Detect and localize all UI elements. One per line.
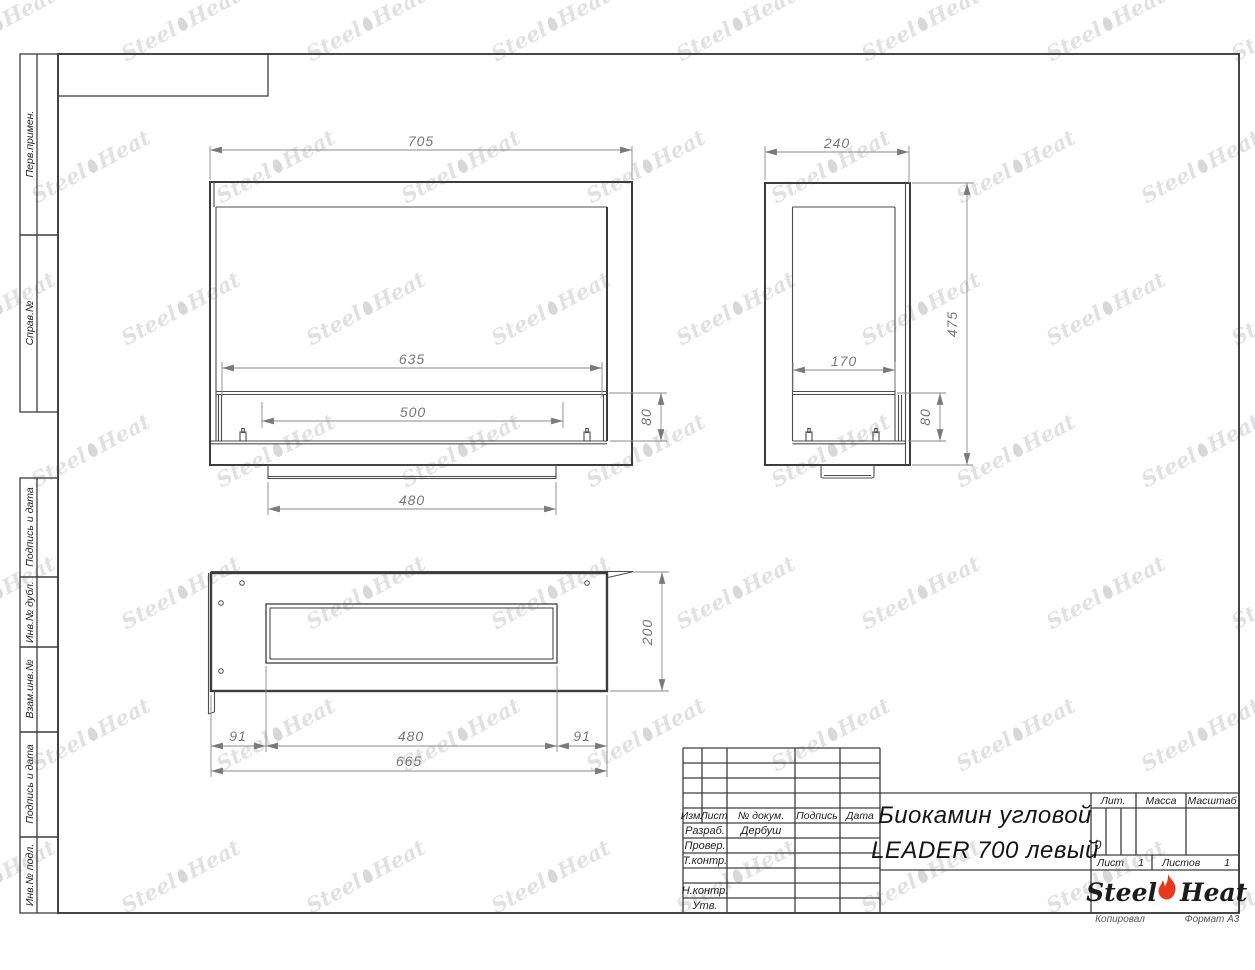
sheet-label: Лист	[1096, 857, 1124, 869]
margin-label: Перв.примен.	[24, 111, 36, 178]
lit-label: Лит.	[1100, 795, 1126, 807]
row-nkontr: Н.контр.	[682, 885, 729, 897]
flame-icon	[1159, 874, 1176, 900]
mounting-hole	[585, 581, 590, 586]
title-block: Изм. Лист № докум. Подпись Дата Разраб. …	[681, 748, 1248, 925]
plan-burner-opening	[266, 604, 557, 663]
dim-plan-right: 91	[573, 728, 591, 744]
brand-logo: Steel Heat	[1086, 874, 1248, 907]
margin-label: Взам.инв.№	[24, 659, 36, 718]
dim-side-strip: 80	[917, 408, 933, 426]
dim-front-burner: 500	[400, 404, 426, 420]
brand-right-text: Heat	[1179, 878, 1248, 907]
scale-label: Масштаб	[1187, 795, 1237, 807]
front-view: 705 635 500 80 480	[210, 133, 667, 515]
row-prover: Провер.	[685, 840, 726, 852]
sheet-value: 1	[1138, 857, 1144, 869]
mounting-hole	[219, 601, 224, 606]
row-razrab: Разраб.	[685, 825, 725, 837]
dim-front-base: 480	[399, 492, 425, 508]
margin-label: Инв.№ дубл.	[24, 581, 36, 643]
dim-front-width: 705	[408, 133, 434, 149]
side-dimensions: 240 475 170 80	[765, 135, 973, 465]
dim-side-width: 240	[823, 135, 850, 151]
plan-view: 200 91 480 91 665	[209, 572, 670, 778]
lit-value: 0	[1095, 838, 1102, 852]
dim-plan-opening: 480	[398, 728, 424, 744]
row-tkontr: Т.контр.	[683, 855, 727, 867]
footer-copy: Копировал	[1095, 914, 1145, 925]
doc-title-line1: Биокамин угловой	[878, 802, 1092, 829]
plan-dimensions: 200 91 480 91 665	[211, 572, 669, 777]
front-dimensions: 705 635 500 80 480	[210, 133, 667, 515]
mass-label: Масса	[1145, 795, 1176, 807]
footer-format: Формат А3	[1185, 914, 1240, 925]
col-list: Лист	[699, 810, 727, 822]
sheets-value: 1	[1224, 857, 1230, 869]
dim-front-strip: 80	[638, 408, 654, 426]
doc-title-line2: LEADER 700 левый	[871, 837, 1099, 864]
sheets-label: Листов	[1161, 857, 1201, 869]
col-sign: Подпись	[796, 810, 838, 822]
razrab-name: Дербуш	[739, 825, 782, 837]
side-view: 240 475 170 80	[765, 135, 973, 478]
col-date: Дата	[845, 810, 874, 822]
brand-left-text: Steel	[1086, 878, 1157, 907]
mounting-hole	[240, 581, 245, 586]
dim-plan-left: 91	[229, 728, 247, 744]
dim-front-opening: 635	[399, 351, 425, 367]
margin-label: Подпись и дата	[24, 744, 36, 824]
row-utv: Утв.	[692, 900, 718, 912]
dim-plan-total: 665	[396, 753, 422, 769]
top-stamp-box	[58, 54, 268, 96]
dim-side-opening: 170	[831, 353, 857, 369]
dim-plan-depth: 200	[639, 619, 655, 646]
margin-label: Инв.№ подл.	[24, 844, 36, 906]
dim-side-height: 475	[944, 311, 960, 337]
margin-cells: Перв.примен. Справ.№ Подпись и дата Инв.…	[20, 54, 58, 913]
mounting-hole	[219, 669, 224, 674]
margin-label: Подпись и дата	[24, 487, 36, 567]
col-doc: № докум.	[738, 810, 784, 822]
burner-clip	[240, 429, 590, 442]
burner-clip	[806, 429, 879, 442]
drawing-sheet: SteelHeatSteelHeatSteelHeatSteelHeatStee…	[0, 0, 1255, 970]
margin-label: Справ.№	[24, 301, 36, 346]
drawing-canvas: Перв.примен. Справ.№ Подпись и дата Инв.…	[0, 0, 1255, 970]
